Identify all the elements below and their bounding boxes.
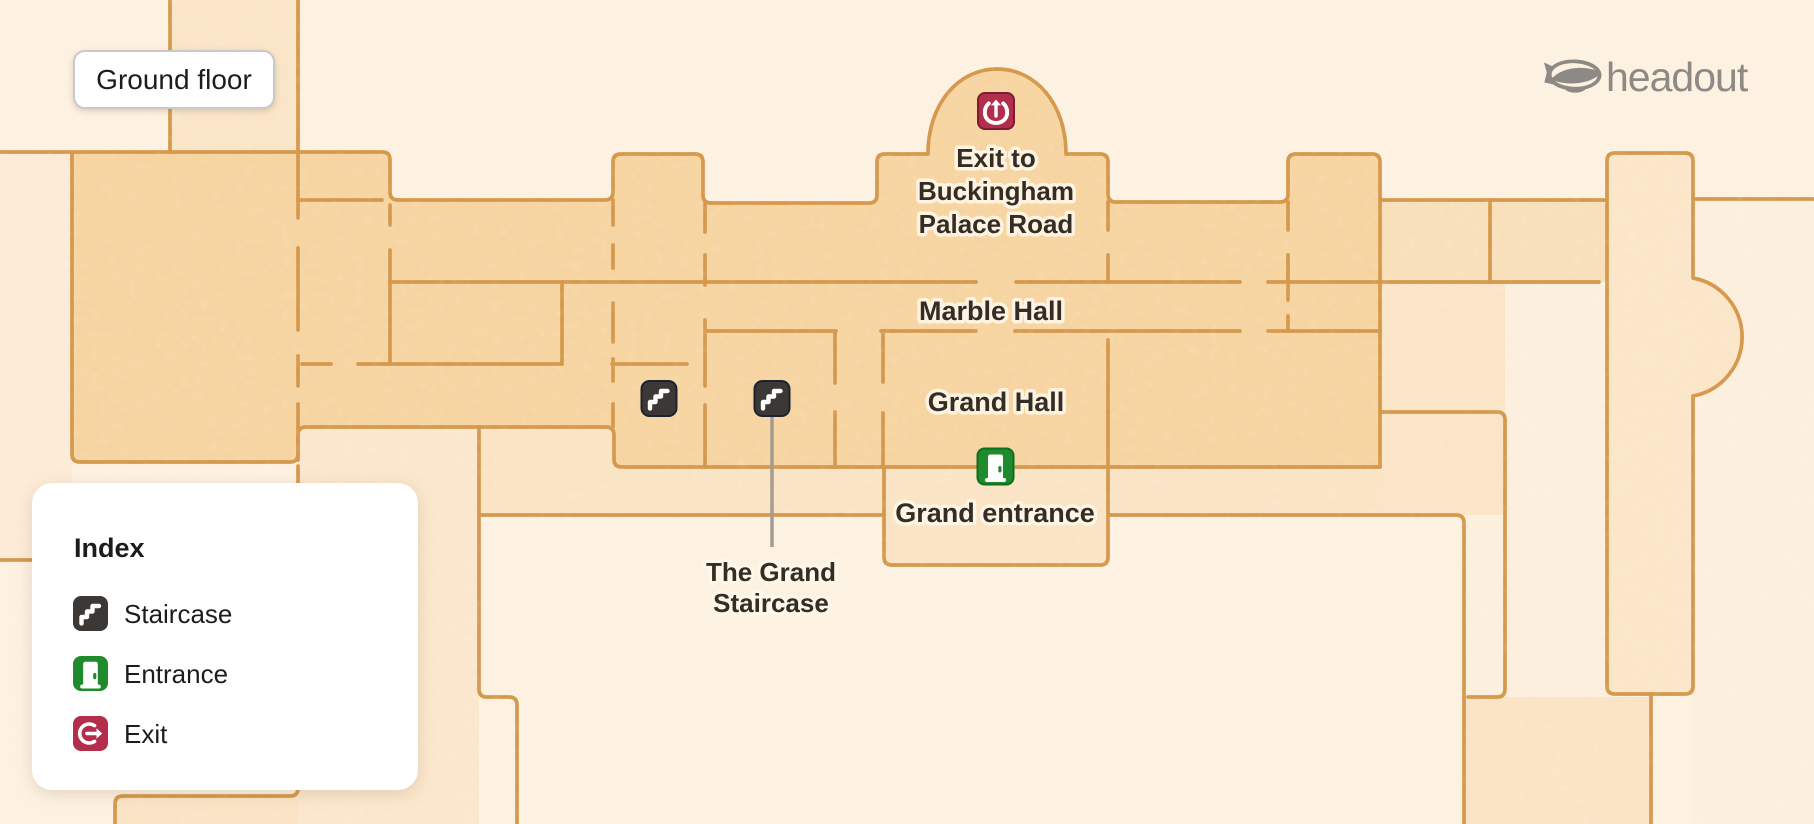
svg-text:Buckingham: Buckingham [918, 176, 1074, 206]
svg-text:Grand entrance: Grand entrance [895, 498, 1095, 528]
svg-text:Ground floor: Ground floor [96, 64, 252, 95]
svg-text:Entrance: Entrance [124, 659, 228, 689]
svg-text:Exit to: Exit to [956, 143, 1035, 173]
svg-text:Palace Road: Palace Road [919, 209, 1074, 239]
svg-text:Staircase: Staircase [713, 588, 829, 618]
svg-text:Staircase: Staircase [124, 599, 232, 629]
svg-text:Marble Hall: Marble Hall [919, 296, 1063, 326]
svg-text:headout: headout [1606, 54, 1749, 100]
svg-text:The Grand: The Grand [706, 557, 836, 587]
svg-text:Grand Hall: Grand Hall [928, 387, 1065, 417]
svg-text:Index: Index [74, 533, 145, 563]
svg-text:Exit: Exit [124, 719, 168, 749]
